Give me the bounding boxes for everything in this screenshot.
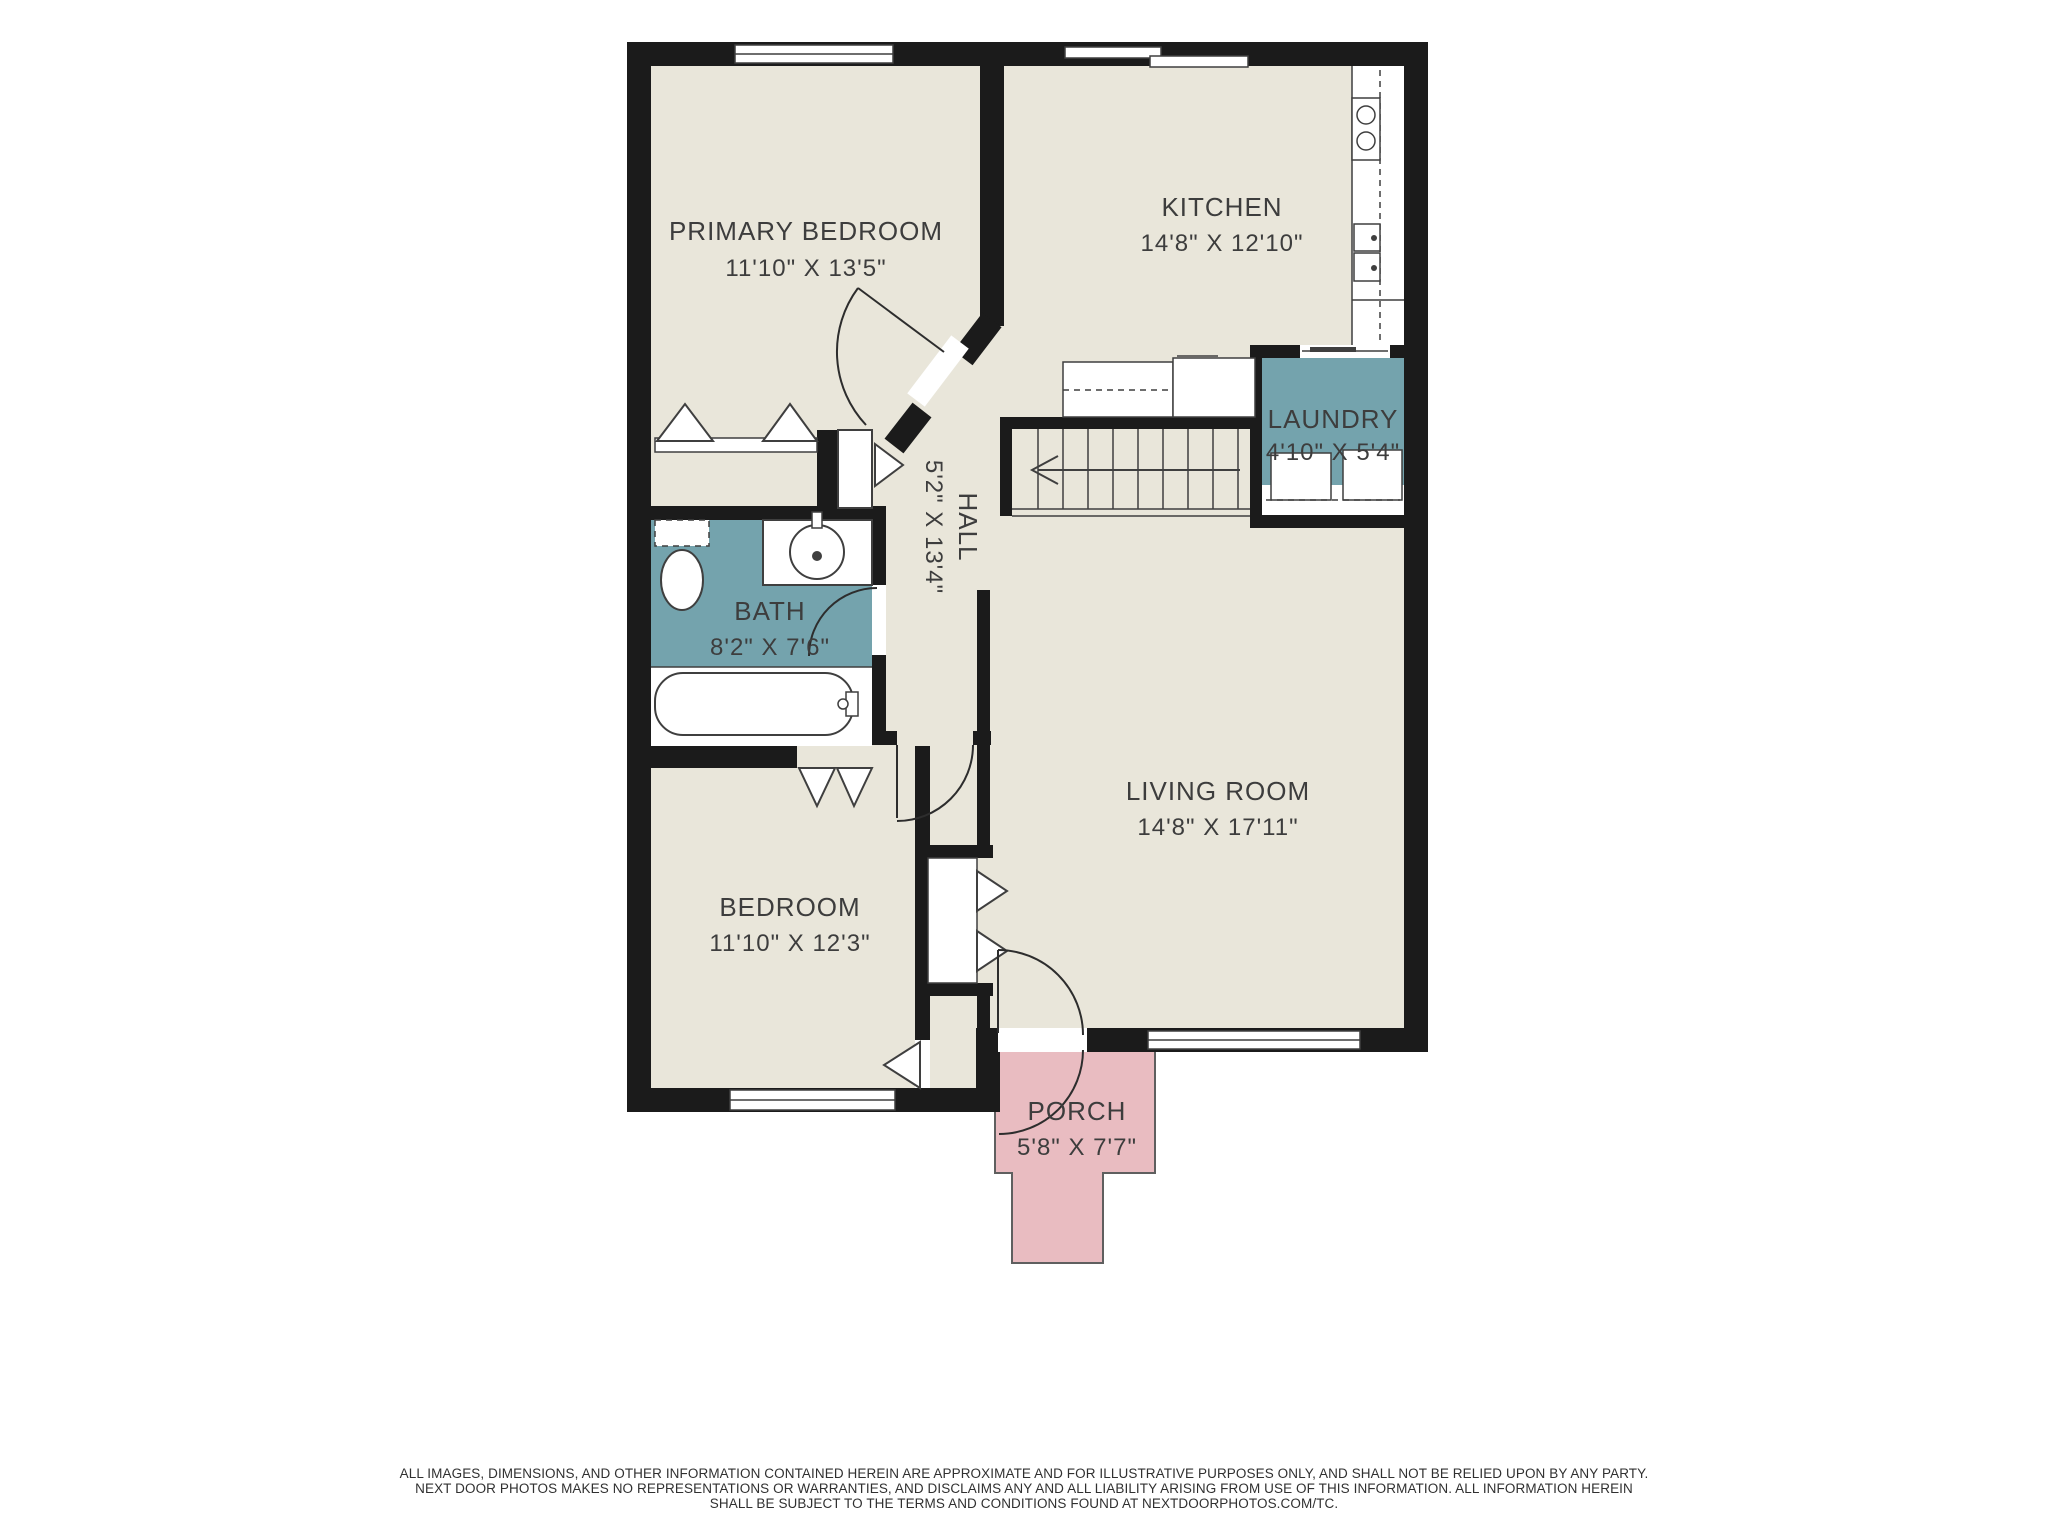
disclaimer-line-3: SHALL BE SUBJECT TO THE TERMS AND CONDIT… xyxy=(0,1496,2048,1511)
wall-bedroom-top xyxy=(627,746,797,768)
living-room-label: LIVING ROOM xyxy=(1126,776,1310,806)
kitchen-peninsula-counters xyxy=(1063,356,1255,417)
bath-dims: 8'2" X 7'6" xyxy=(710,634,830,661)
stove-icon xyxy=(1352,98,1380,160)
window-bedroom xyxy=(730,1090,895,1110)
wall-living-left-lower xyxy=(977,983,990,1028)
living-room-dims: 14'8" X 17'11" xyxy=(1137,814,1298,841)
kitchen-sink-icon xyxy=(1354,224,1380,281)
bedroom-floor-area xyxy=(651,1035,981,1095)
wall-right xyxy=(1404,42,1428,1052)
laundry-dims: 4'10" X 5'4" xyxy=(1266,439,1400,466)
wall-living-left-upper xyxy=(977,590,990,858)
bath-label: BATH xyxy=(734,596,805,626)
wall-stairs-left xyxy=(1000,417,1012,516)
primary-bedroom-label: PRIMARY BEDROOM xyxy=(669,216,943,246)
bedroom-label: BEDROOM xyxy=(719,892,860,922)
kitchen-dims: 14'8" X 12'10" xyxy=(1141,230,1304,257)
kitchen-label: KITCHEN xyxy=(1161,192,1282,222)
front-door-opening xyxy=(998,1028,1087,1052)
vanity-sink-icon xyxy=(763,512,872,585)
wall-porch-side xyxy=(976,1028,1000,1112)
window-living-room xyxy=(1148,1031,1360,1049)
bathtub-icon xyxy=(651,667,872,735)
wall-bath-right-upper xyxy=(872,506,886,585)
floor-plan-page: PRIMARY BEDROOM 11'10" X 13'5" KITCHEN 1… xyxy=(0,0,2048,1536)
window-primary-bedroom xyxy=(735,45,893,63)
hall-label: HALL xyxy=(953,492,983,561)
porch-label: PORCH xyxy=(1028,1096,1127,1126)
hall-dims: 5'2" X 13'4" xyxy=(920,460,947,594)
laundry-label: LAUNDRY xyxy=(1268,404,1399,434)
floor-plan-drawing: PRIMARY BEDROOM 11'10" X 13'5" KITCHEN 1… xyxy=(0,0,2048,1536)
disclaimer-line-1: ALL IMAGES, DIMENSIONS, AND OTHER INFORM… xyxy=(0,1466,2048,1481)
primary-bedroom-dims: 11'10" X 13'5" xyxy=(725,255,886,282)
bath-door-opening xyxy=(872,585,886,655)
wall-left xyxy=(627,42,651,1112)
laundry-sliding-door xyxy=(1300,345,1390,358)
disclaimer: ALL IMAGES, DIMENSIONS, AND OTHER INFORM… xyxy=(0,1466,2048,1511)
bedroom-dims: 11'10" X 12'3" xyxy=(709,930,870,957)
wall-primary-kitchen xyxy=(980,42,1004,326)
wall-hall-bottom-left xyxy=(872,731,897,745)
porch-dims: 5'8" X 7'7" xyxy=(1017,1134,1137,1161)
wall-stairs-top xyxy=(1012,417,1258,429)
wall-laundry-bottom xyxy=(1250,515,1404,528)
disclaimer-line-2: NEXT DOOR PHOTOS MAKES NO REPRESENTATION… xyxy=(0,1481,2048,1496)
